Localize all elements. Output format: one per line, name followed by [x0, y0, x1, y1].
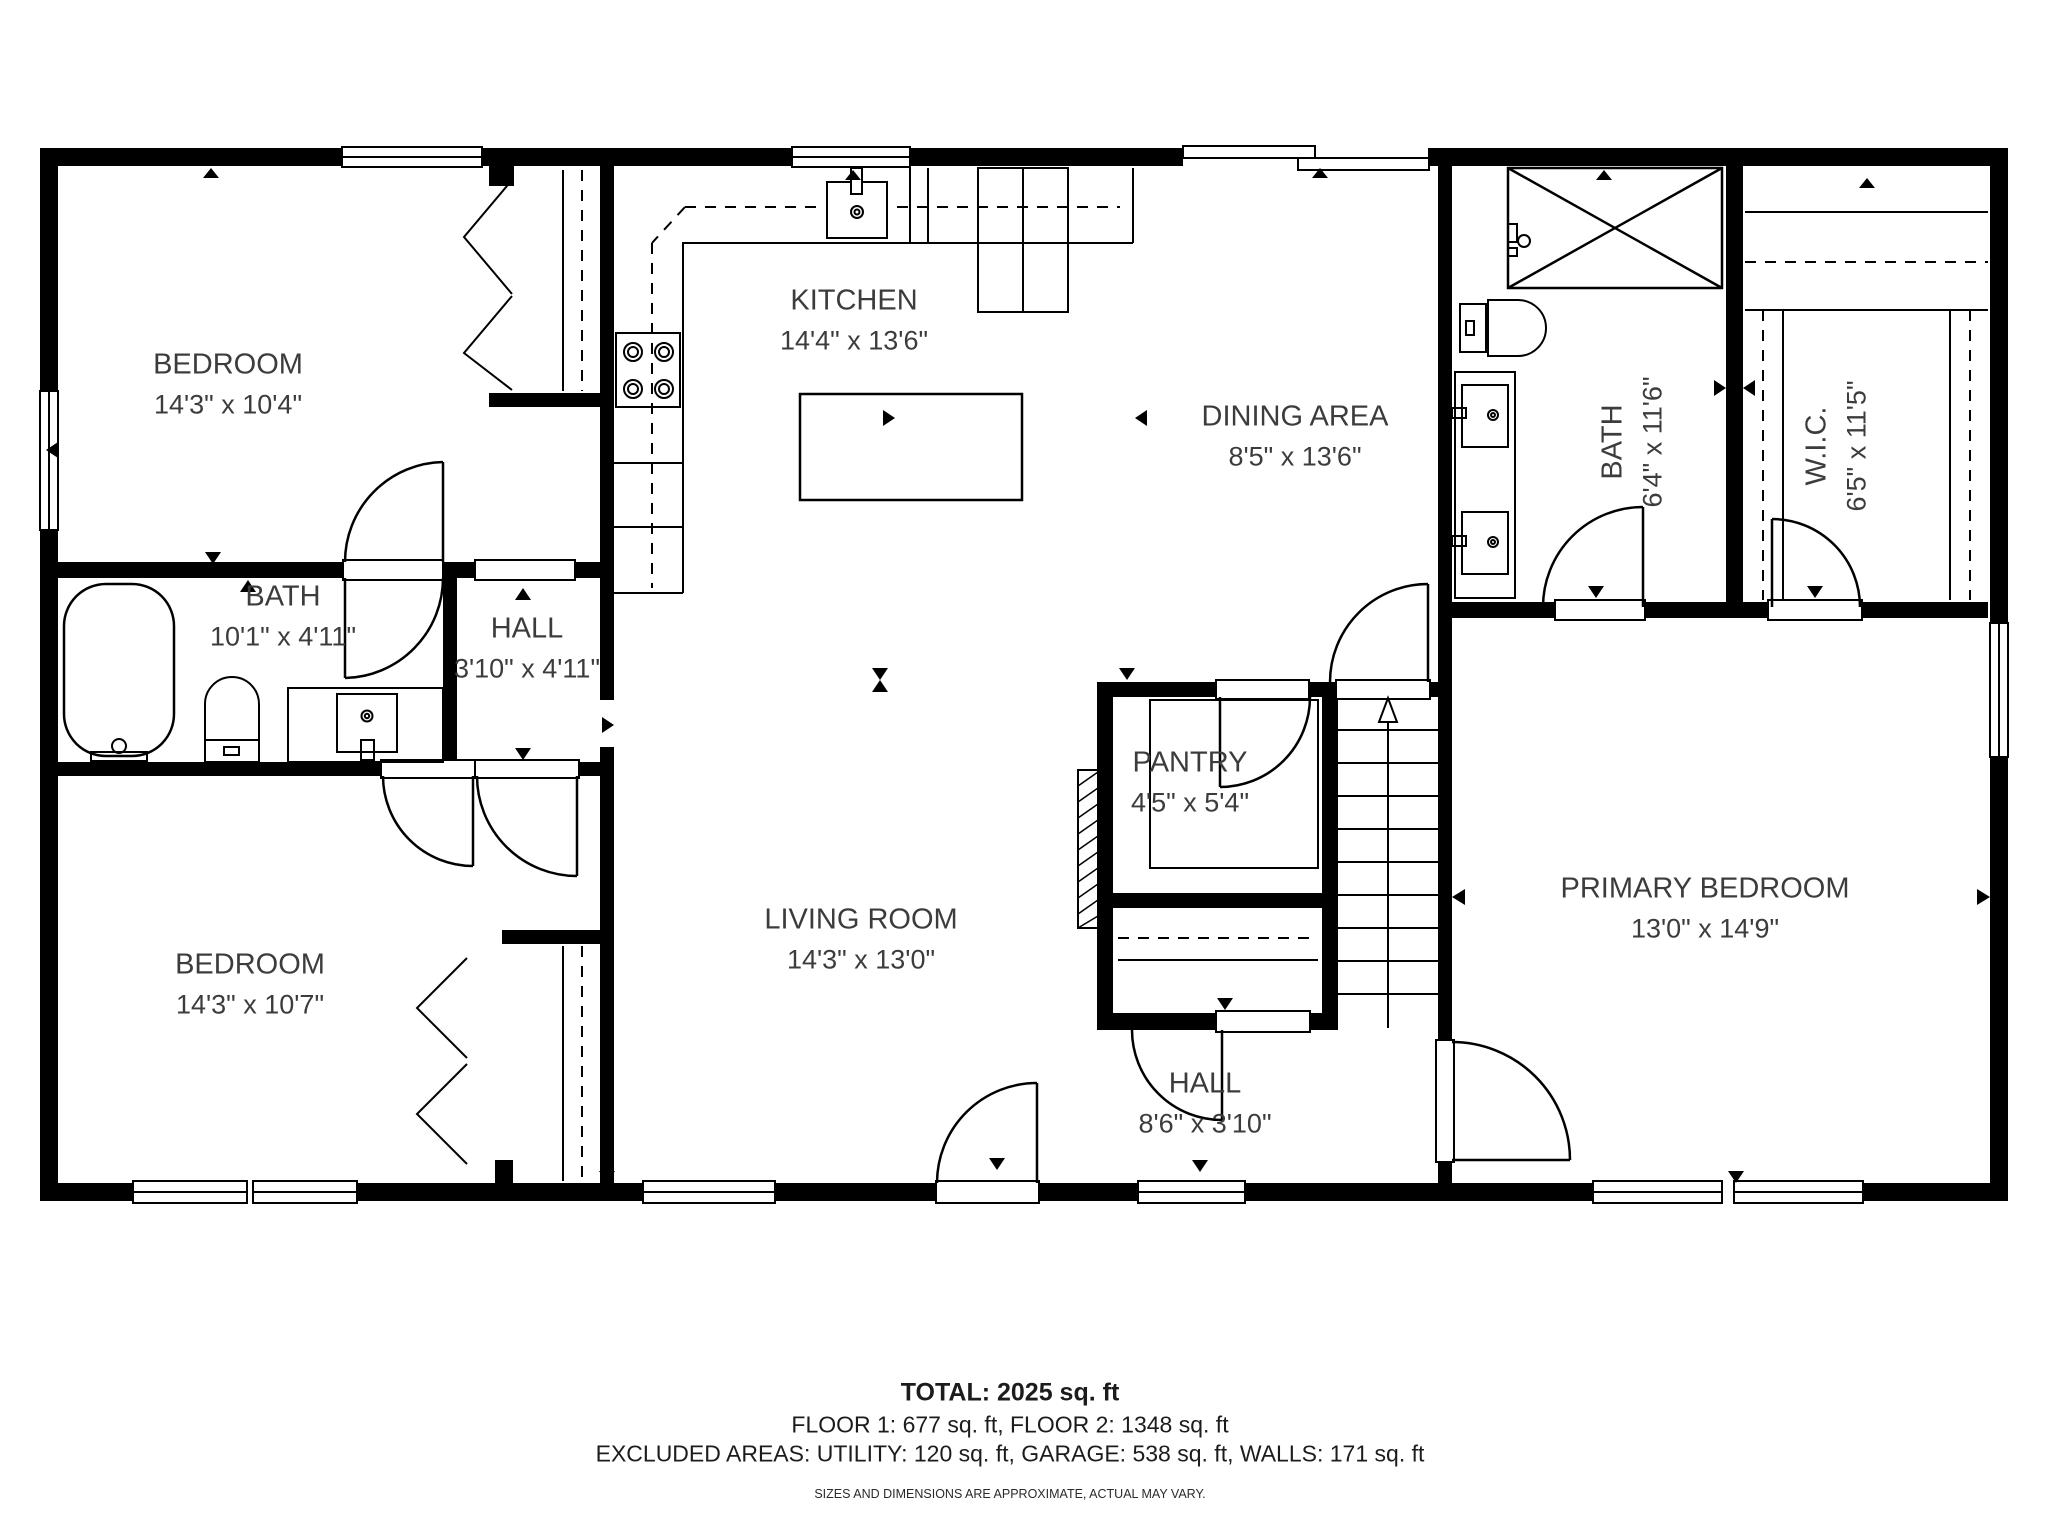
room-label-dining-area: DINING AREA 8'5" x 13'6": [1202, 395, 1389, 476]
room-label-pantry: PANTRY 4'5" x 5'4": [1131, 741, 1249, 822]
door-living-from-hall: [477, 776, 577, 876]
window-living-icon: [643, 1181, 775, 1203]
room-label-wic: W.I.C. 6'5" x 11'5": [1795, 380, 1876, 511]
window-primary-left-icon: [1593, 1181, 1722, 1203]
stairs: [1338, 698, 1438, 1028]
window-primary-side-icon: [1990, 623, 2008, 757]
room-label-bedroom-1: BEDROOM 14'3" x 10'4": [153, 343, 303, 424]
room-label-living-room: LIVING ROOM 14'3" x 13'0": [764, 898, 957, 979]
bathtub-icon: [64, 584, 174, 761]
window-bedroom2-right-icon: [253, 1181, 357, 1203]
room-label-bath-main: BATH 10'1" x 4'11": [210, 575, 356, 656]
room-label-kitchen: KITCHEN 14'4" x 13'6": [780, 279, 928, 360]
entry-door-sill-icon: [1138, 1181, 1245, 1203]
hall-closet-rod: [1118, 938, 1318, 960]
footer-disclaimer: SIZES AND DIMENSIONS ARE APPROXIMATE, AC…: [814, 1487, 1205, 1501]
window-bedroom1-top-icon: [342, 147, 482, 167]
window-bedroom1-left-icon: [40, 391, 58, 530]
chimney-hatch: [1078, 770, 1098, 928]
window-primary-right-icon: [1734, 1181, 1863, 1203]
footer-excluded-areas: EXCLUDED AREAS: UTILITY: 120 sq. ft, GAR…: [596, 1441, 1425, 1468]
closet-bedroom2: [417, 946, 582, 1181]
kitchen-island: [800, 394, 1022, 500]
refrigerator-icon: [978, 168, 1068, 312]
room-label-primary-bedroom: PRIMARY BEDROOM 13'0" x 14'9": [1561, 867, 1850, 948]
closet-bedroom1: [464, 170, 582, 391]
shower-icon: [1508, 168, 1722, 288]
door-bath-main: [345, 578, 443, 678]
toilet-upper-icon: [1460, 300, 1546, 356]
room-label-bath-upper: BATH 6'4" x 11'6": [1591, 376, 1672, 507]
door-primary-bedroom: [1452, 1042, 1570, 1160]
room-label-bedroom-2: BEDROOM 14'3" x 10'7": [175, 943, 325, 1024]
stairs-up-arrow-icon: [1379, 698, 1397, 722]
room-label-hall-small: HALL 3'10" x 4'11": [454, 607, 600, 688]
room-label-hall-lower: HALL 8'6" x 3'10": [1138, 1062, 1271, 1143]
door-bedroom1: [345, 462, 443, 562]
floor-plan-page: BEDROOM 14'3" x 10'4" KITCHEN 14'4" x 13…: [0, 0, 2048, 1536]
door-bedroom2: [383, 776, 473, 866]
floor-plan-drawing: [0, 0, 2048, 1536]
stove-icon: [616, 333, 680, 407]
footer-total-area: TOTAL: 2025 sq. ft: [901, 1379, 1120, 1408]
vanity-upper-icon: [1452, 372, 1515, 598]
footer-floor-areas: FLOOR 1: 677 sq. ft, FLOOR 2: 1348 sq. f…: [791, 1412, 1228, 1439]
toilet-main-icon: [205, 677, 259, 762]
interior-walls: [40, 166, 1988, 1183]
vanity-main-icon: [288, 688, 443, 762]
window-bedroom2-left-icon: [133, 1181, 247, 1203]
window-kitchen-sink-icon: [792, 147, 910, 167]
door-stairs: [1330, 584, 1428, 682]
opening-markers: [46, 168, 2002, 1183]
sliding-door-dining-icon: [1183, 146, 1429, 170]
door-front-living: [937, 1083, 1037, 1183]
